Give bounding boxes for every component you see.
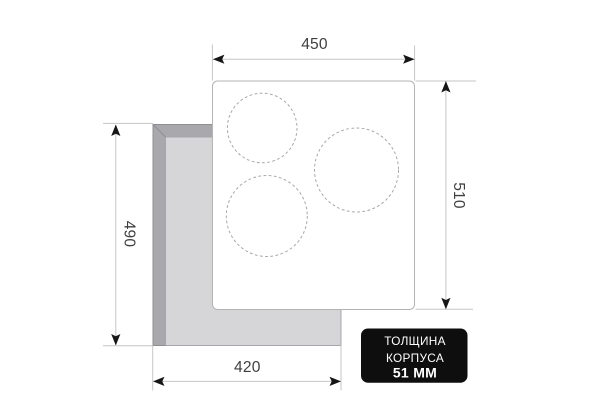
svg-text:420: 420 bbox=[234, 359, 261, 376]
svg-text:КОРПУСА: КОРПУСА bbox=[386, 351, 444, 365]
svg-text:510: 510 bbox=[450, 182, 467, 209]
svg-text:490: 490 bbox=[121, 221, 138, 248]
svg-text:450: 450 bbox=[301, 36, 328, 53]
svg-text:ТОЛЩИНА: ТОЛЩИНА bbox=[384, 334, 446, 348]
svg-text:51 ММ: 51 ММ bbox=[393, 364, 437, 380]
